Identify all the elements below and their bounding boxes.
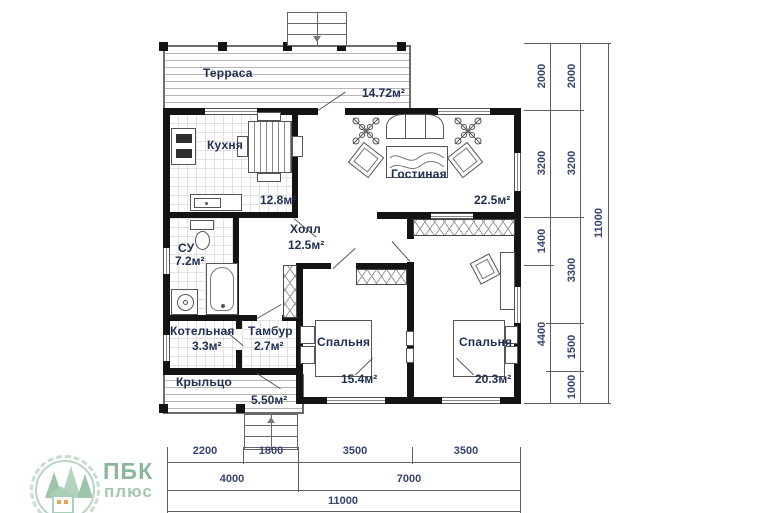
wall xyxy=(163,368,303,375)
logo-badge xyxy=(35,460,95,513)
area-label-living: 22.5м² xyxy=(474,193,510,207)
porch-post xyxy=(236,404,245,413)
room-label-bedroom1: Спальня xyxy=(317,335,370,349)
plant-icon xyxy=(350,115,382,147)
tree-icon xyxy=(77,474,93,498)
terrace-post xyxy=(218,42,227,51)
window xyxy=(442,397,500,404)
stairs-arrow-icon xyxy=(313,36,321,42)
porch-post xyxy=(159,404,168,413)
wall xyxy=(236,350,242,372)
room-label-bedroom2: Спальня xyxy=(459,335,512,349)
dimension-tick xyxy=(524,217,584,218)
dim-right: 2000 xyxy=(536,64,548,88)
room-label-living: Гостиная xyxy=(391,167,447,181)
logo-gear-icon xyxy=(30,455,100,513)
logo-text: плюс xyxy=(104,482,153,502)
room-label-terrace: Терраса xyxy=(203,66,253,80)
door-swing xyxy=(333,248,356,269)
dimension-line xyxy=(550,43,551,403)
stairs-arrow-icon xyxy=(267,417,275,423)
dim-bottom-total: 11000 xyxy=(328,495,358,507)
dimension-tick xyxy=(546,371,584,372)
chair xyxy=(257,112,281,121)
window xyxy=(163,248,170,274)
terrace-deck xyxy=(163,45,411,114)
logo-text: ПБК xyxy=(103,458,153,485)
terrace-post xyxy=(159,42,168,51)
dimension-line xyxy=(167,511,521,512)
dining-table xyxy=(248,121,292,173)
dimension-tick xyxy=(546,323,584,324)
bathtub xyxy=(206,263,238,315)
armchair xyxy=(447,142,483,178)
dimension-tick xyxy=(167,447,168,513)
dimension-tick xyxy=(298,447,299,492)
wall-niche xyxy=(406,348,414,363)
dim-right: 1000 xyxy=(566,375,578,399)
room-label-boiler: Котельная xyxy=(170,324,235,338)
kitchen-stove xyxy=(171,128,196,165)
wall xyxy=(166,212,293,218)
wardrobe xyxy=(283,265,297,318)
area-label-porch: 5.50м² xyxy=(251,393,287,407)
dim-right: 1400 xyxy=(536,229,548,253)
area-label-bedroom1: 15.4м² xyxy=(341,372,377,386)
window xyxy=(514,153,521,191)
dim-bottom: 4000 xyxy=(220,473,244,485)
dim-bottom: 3500 xyxy=(343,445,367,457)
chair xyxy=(292,136,303,157)
window xyxy=(327,397,385,404)
terrace-door-opening xyxy=(318,108,345,115)
room-label-hall: Холл xyxy=(290,222,321,236)
window xyxy=(514,287,521,323)
door-swing xyxy=(257,304,282,319)
desk-chair xyxy=(470,253,501,285)
room-label-tambour: Тамбур xyxy=(248,324,293,338)
wall xyxy=(166,315,257,321)
room-label-kitchen: Кухня xyxy=(207,138,243,152)
dim-bottom: 3500 xyxy=(454,445,478,457)
dimension-tick xyxy=(524,265,554,266)
dim-right: 3200 xyxy=(566,151,578,175)
area-label-boiler: 3.3м² xyxy=(192,339,222,353)
area-label-bathroom: 7.2м² xyxy=(175,254,205,268)
dim-bottom: 2200 xyxy=(193,445,217,457)
sofa xyxy=(386,114,444,139)
chair xyxy=(257,173,281,182)
window xyxy=(438,108,490,115)
dimension-tick xyxy=(520,447,521,513)
area-label-bedroom2: 20.3м² xyxy=(475,372,511,386)
wardrobe xyxy=(413,219,515,236)
washing-machine xyxy=(171,289,198,315)
dimension-tick xyxy=(524,110,584,111)
wall xyxy=(296,263,331,269)
toilet-cistern xyxy=(190,220,214,230)
dim-right: 1500 xyxy=(566,335,578,359)
window xyxy=(205,108,257,115)
wall-niche xyxy=(406,331,414,346)
dim-right: 3300 xyxy=(566,258,578,282)
area-label-terrace: 14.72м² xyxy=(362,86,405,100)
toilet xyxy=(195,231,210,250)
door-swing xyxy=(392,241,411,262)
armchair xyxy=(348,142,384,178)
window xyxy=(163,335,170,361)
dim-bottom: 7000 xyxy=(397,473,421,485)
area-label-tambour: 2.7м² xyxy=(254,339,284,353)
kitchen-counter xyxy=(190,194,242,211)
dim-bottom: 1800 xyxy=(259,445,283,457)
dim-right-total: 11000 xyxy=(593,208,605,238)
area-label-kitchen: 12.8м² xyxy=(260,193,296,207)
wall xyxy=(236,320,242,329)
desk xyxy=(500,252,515,310)
dimension-line xyxy=(580,43,581,403)
dimension-tick xyxy=(524,43,611,44)
dim-right: 2000 xyxy=(566,64,578,88)
dimension-tick xyxy=(412,447,413,464)
dim-right: 3200 xyxy=(536,151,548,175)
dim-right: 4400 xyxy=(536,322,548,346)
wardrobe xyxy=(356,269,407,285)
terrace-post xyxy=(397,42,406,51)
floor-plan: Терраса 14.72м² Кухня 12.8м² Гостиная 22… xyxy=(0,0,770,513)
area-label-hall: 12.5м² xyxy=(288,238,324,252)
logo-house-icon xyxy=(52,495,74,513)
dimension-line xyxy=(608,43,609,403)
dimension-tick xyxy=(524,403,611,404)
dimension-line xyxy=(167,462,521,463)
nightstand xyxy=(300,326,315,344)
room-label-porch: Крыльцо xyxy=(176,375,232,389)
room-label-bathroom: СУ xyxy=(178,241,194,255)
dimension-line xyxy=(167,490,521,491)
dimension-tick xyxy=(243,447,244,464)
nightstand xyxy=(300,346,315,364)
